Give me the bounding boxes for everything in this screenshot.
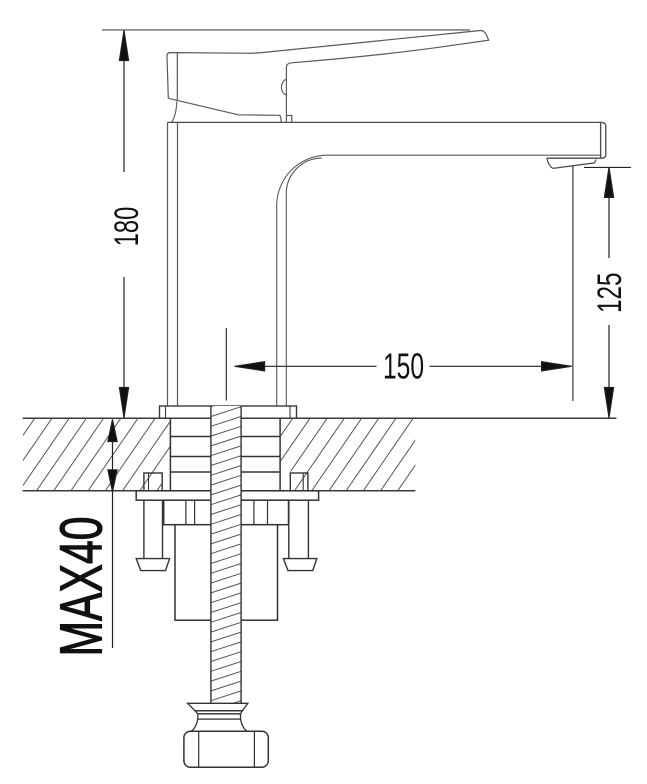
svg-text:125: 125 xyxy=(591,273,629,314)
svg-text:MAX40: MAX40 xyxy=(47,517,114,657)
svg-text:150: 150 xyxy=(383,346,424,387)
svg-text:180: 180 xyxy=(108,207,146,247)
